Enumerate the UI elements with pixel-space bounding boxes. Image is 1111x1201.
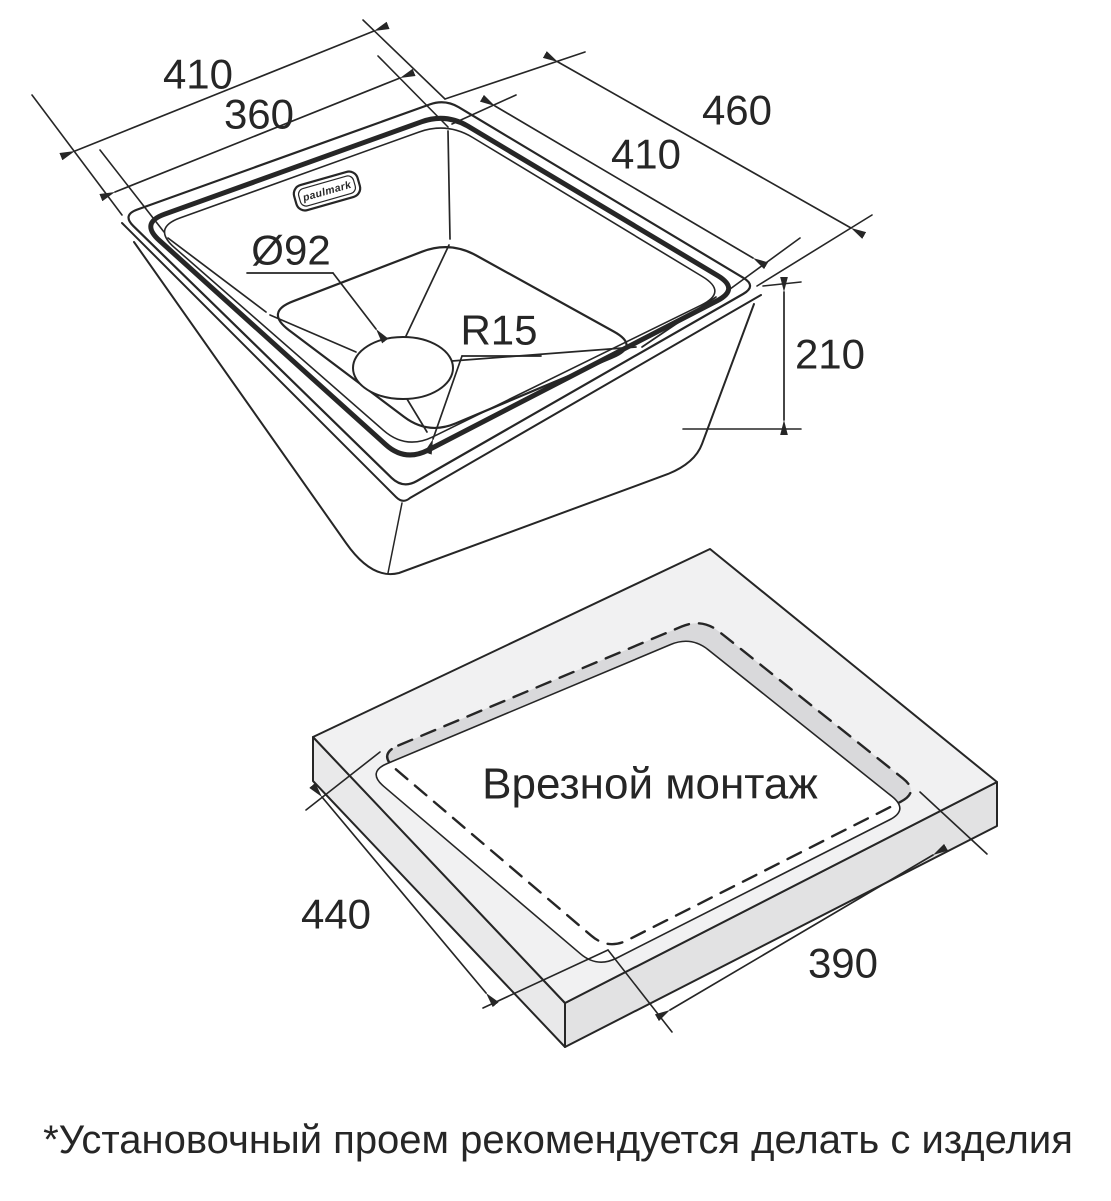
sink-isometric-view: paulmark 410 360 [32,20,872,574]
cutout-title: Врезной монтаж [482,760,818,809]
dim-drain-diameter-label: Ø92 [251,227,330,274]
sink-installation-drawing: paulmark 410 360 [0,0,1111,1201]
dim-cutout-left-label: 440 [301,891,371,938]
countertop-cutout-view: Врезной монтаж 440 390 [301,549,997,1047]
extension-line [32,95,122,215]
drain-hole [353,337,453,399]
dim-bowl-length-label: 410 [611,131,681,178]
dim-corner-radius-label: R15 [460,307,537,354]
technical-drawing-page: paulmark 410 360 [0,0,1111,1201]
footnote-caption: *Установочный проем рекомендуется делать… [43,1118,1073,1162]
dim-height-label: 210 [795,331,865,378]
dim-bowl-width-label: 360 [224,91,294,138]
dim-rim-width-label: 410 [163,51,233,98]
dim-cutout-right-label: 390 [808,940,878,987]
extension-line [445,52,585,99]
height-top-tick [763,282,801,286]
extension-line [757,215,872,286]
dim-rim-length-label: 460 [702,87,772,134]
sink-body-front-crease [388,503,402,573]
